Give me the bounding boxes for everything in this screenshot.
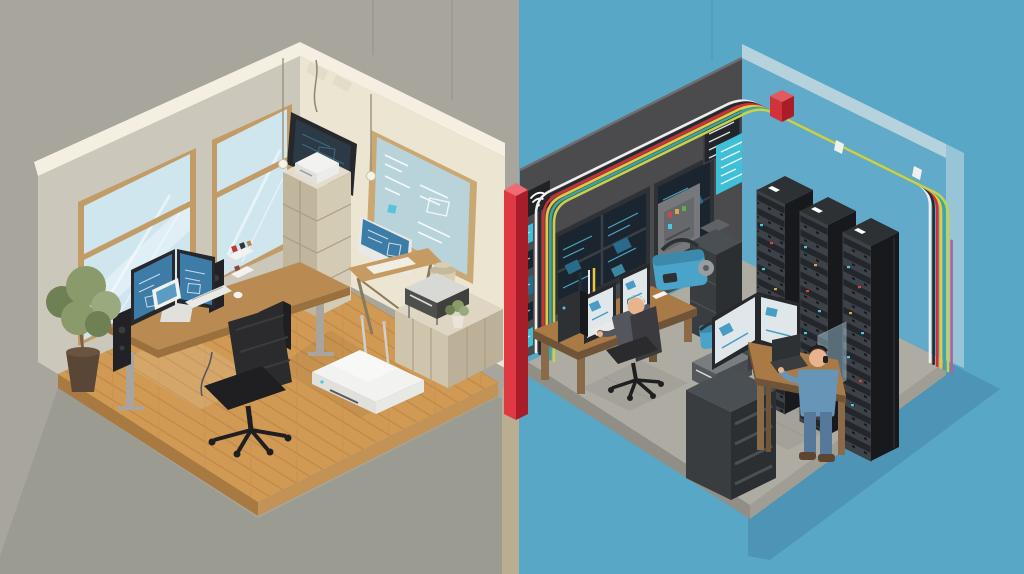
- speaker-left: [113, 308, 131, 372]
- isometric-illustration: [0, 0, 1024, 574]
- cable-junction-box: [770, 90, 794, 122]
- bulb-icon: [367, 172, 376, 181]
- red-divider-column: [504, 183, 528, 420]
- server-rack-3: [843, 218, 899, 461]
- bulb-icon: [279, 160, 288, 169]
- illustration-canvas: [0, 0, 1024, 574]
- mouse: [234, 292, 243, 298]
